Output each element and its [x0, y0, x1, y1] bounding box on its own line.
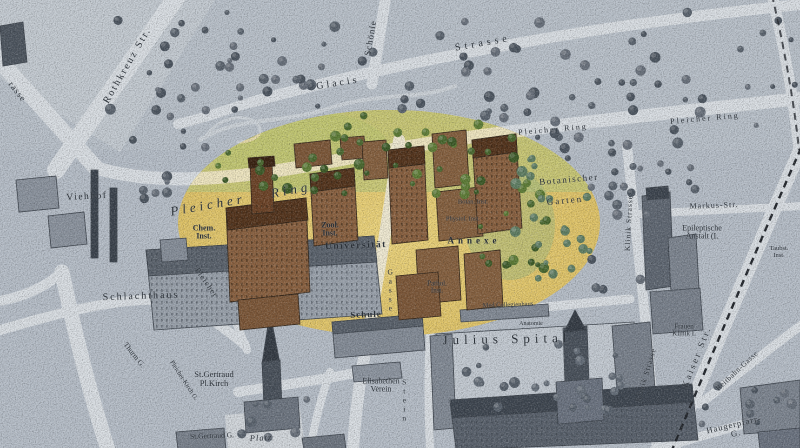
map-graphic: [0, 0, 800, 448]
paper-texture: [0, 0, 800, 448]
historical-city-map: Rothkreuz Str.rasseGlacisStrasseSchönleP…: [0, 0, 800, 448]
